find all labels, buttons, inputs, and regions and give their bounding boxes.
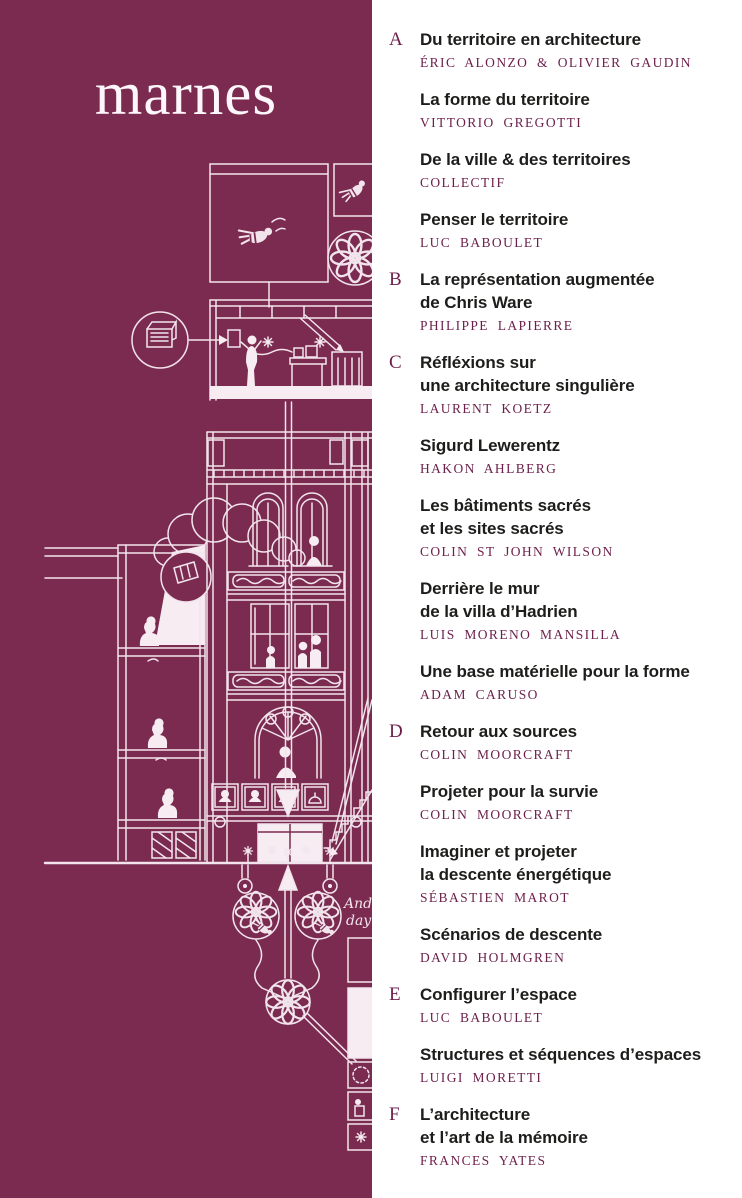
toc-entry: Sigurd Lewerentz HAKON AHLBERG bbox=[389, 434, 742, 477]
toc-entry: F L’architectureet l’art de la mémoire F… bbox=[389, 1103, 742, 1169]
section-letter bbox=[389, 494, 420, 560]
toc-entry: La forme du territoire VITTORIO GREGOTTI bbox=[389, 88, 742, 131]
handwritten-text: And day bbox=[342, 896, 372, 929]
section-letter: C bbox=[389, 351, 420, 417]
entry-author: FRANCES YATES bbox=[420, 1152, 742, 1169]
entry-author: ADAM CARUSO bbox=[420, 686, 742, 703]
stairs bbox=[324, 698, 372, 860]
section-letter: E bbox=[389, 983, 420, 1026]
entry-title: De la ville & des territoires bbox=[420, 148, 742, 171]
section-letter: A bbox=[389, 28, 420, 71]
toc-entry: Penser le territoire LUC BABOULET bbox=[389, 208, 742, 251]
entry-title: L’architectureet l’art de la mémoire bbox=[420, 1103, 742, 1149]
entry-title: Penser le territoire bbox=[420, 208, 742, 231]
section-letter bbox=[389, 88, 420, 131]
building-cross-section-illustration: And day bbox=[0, 0, 372, 1198]
small-bee-box-icon bbox=[334, 164, 372, 216]
toc-entry: D Retour aux sources COLIN MOORCRAFT bbox=[389, 720, 742, 763]
entry-author: COLIN ST JOHN WILSON bbox=[420, 543, 742, 560]
entry-title: Scénarios de descente bbox=[420, 923, 742, 946]
entry-title: Structures et séquences d’espaces bbox=[420, 1043, 742, 1066]
toc-entry: Scénarios de descente DAVID HOLMGREN bbox=[389, 923, 742, 966]
entry-title: Imaginer et projeterla descente énergéti… bbox=[420, 840, 742, 886]
section-letter bbox=[389, 208, 420, 251]
svg-text:day: day bbox=[346, 913, 372, 929]
entry-author: VITTORIO GREGOTTI bbox=[420, 114, 742, 131]
section-letter: B bbox=[389, 268, 420, 334]
toc-entry: B La représentation augmentéede Chris Wa… bbox=[389, 268, 742, 334]
root-diagram bbox=[233, 865, 356, 1064]
entry-author: LAURENT KOETZ bbox=[420, 400, 742, 417]
entry-author: ÉRIC ALONZO & OLIVIER GAUDIN bbox=[420, 54, 742, 71]
toc-entry: A Du territoire en architecture ÉRIC ALO… bbox=[389, 28, 742, 71]
section-letter bbox=[389, 148, 420, 191]
toc-entry: E Configurer l’espace LUC BABOULET bbox=[389, 983, 742, 1026]
section-letter: D bbox=[389, 720, 420, 763]
toc-entry: Les bâtiments sacréset les sites sacrés … bbox=[389, 494, 742, 560]
section-letter bbox=[389, 434, 420, 477]
bee-box-icon bbox=[210, 164, 328, 307]
entry-title: Retour aux sources bbox=[420, 720, 742, 743]
building-facade bbox=[207, 402, 372, 863]
flower-wheel-icon bbox=[233, 892, 279, 939]
section-letter bbox=[389, 840, 420, 906]
interior-room-scene bbox=[210, 300, 372, 400]
entry-author: COLLECTIF bbox=[420, 174, 742, 191]
toc-entry: Une base matérielle pour la forme ADAM C… bbox=[389, 660, 742, 703]
up-arrow bbox=[279, 866, 297, 978]
entry-title: Du territoire en architecture bbox=[420, 28, 742, 51]
entry-title: La forme du territoire bbox=[420, 88, 742, 111]
entry-title: Sigurd Lewerentz bbox=[420, 434, 742, 457]
section-letter bbox=[389, 1043, 420, 1086]
journal-logo: marnes bbox=[0, 64, 372, 125]
toc-entry: De la ville & des territoires COLLECTIF bbox=[389, 148, 742, 191]
toc-entry: Derrière le murde la villa d’Hadrien LUI… bbox=[389, 577, 742, 643]
table-of-contents: A Du territoire en architecture ÉRIC ALO… bbox=[372, 0, 742, 1186]
entry-title: Configurer l’espace bbox=[420, 983, 742, 1006]
comic-strip-panels bbox=[348, 938, 372, 1150]
section-letter: F bbox=[389, 1103, 420, 1169]
toc-entry: Imaginer et projeterla descente énergéti… bbox=[389, 840, 742, 906]
register-magnifier-icon bbox=[132, 312, 240, 368]
entry-author: DAVID HOLMGREN bbox=[420, 949, 742, 966]
section-letter bbox=[389, 780, 420, 823]
left-building-section bbox=[45, 545, 211, 860]
portrait-frames bbox=[212, 784, 328, 810]
entry-author: LUIGI MORETTI bbox=[420, 1069, 742, 1086]
entry-author: PHILIPPE LAPIERRE bbox=[420, 317, 742, 334]
section-letter bbox=[389, 923, 420, 966]
section-letter bbox=[389, 660, 420, 703]
entry-title: Les bâtiments sacréset les sites sacrés bbox=[420, 494, 742, 540]
toc-entry: C Réfléxions surune architecture singuli… bbox=[389, 351, 742, 417]
entry-author: LUC BABOULET bbox=[420, 1009, 742, 1026]
flower-medallion-icon bbox=[328, 231, 372, 285]
entry-title: Projeter pour la survie bbox=[420, 780, 742, 803]
cover-panel: And day marnes bbox=[0, 0, 372, 1198]
entry-title: Une base matérielle pour la forme bbox=[420, 660, 742, 683]
flower-wheel-icon bbox=[295, 892, 341, 939]
toc-entry: Structures et séquences d’espaces LUIGI … bbox=[389, 1043, 742, 1086]
entry-title: Derrière le murde la villa d’Hadrien bbox=[420, 577, 742, 623]
entry-title: La représentation augmentéede Chris Ware bbox=[420, 268, 742, 314]
section-letter bbox=[389, 577, 420, 643]
svg-text:And: And bbox=[342, 896, 372, 912]
entry-author: HAKON AHLBERG bbox=[420, 460, 742, 477]
entry-author: LUC BABOULET bbox=[420, 234, 742, 251]
entry-title: Réfléxions surune architecture singulièr… bbox=[420, 351, 742, 397]
entry-author: COLIN MOORCRAFT bbox=[420, 746, 742, 763]
entry-author: SÉBASTIEN MAROT bbox=[420, 889, 742, 906]
entry-author: COLIN MOORCRAFT bbox=[420, 806, 742, 823]
toc-entry: Projeter pour la survie COLIN MOORCRAFT bbox=[389, 780, 742, 823]
entry-author: LUIS MORENO MANSILLA bbox=[420, 626, 742, 643]
